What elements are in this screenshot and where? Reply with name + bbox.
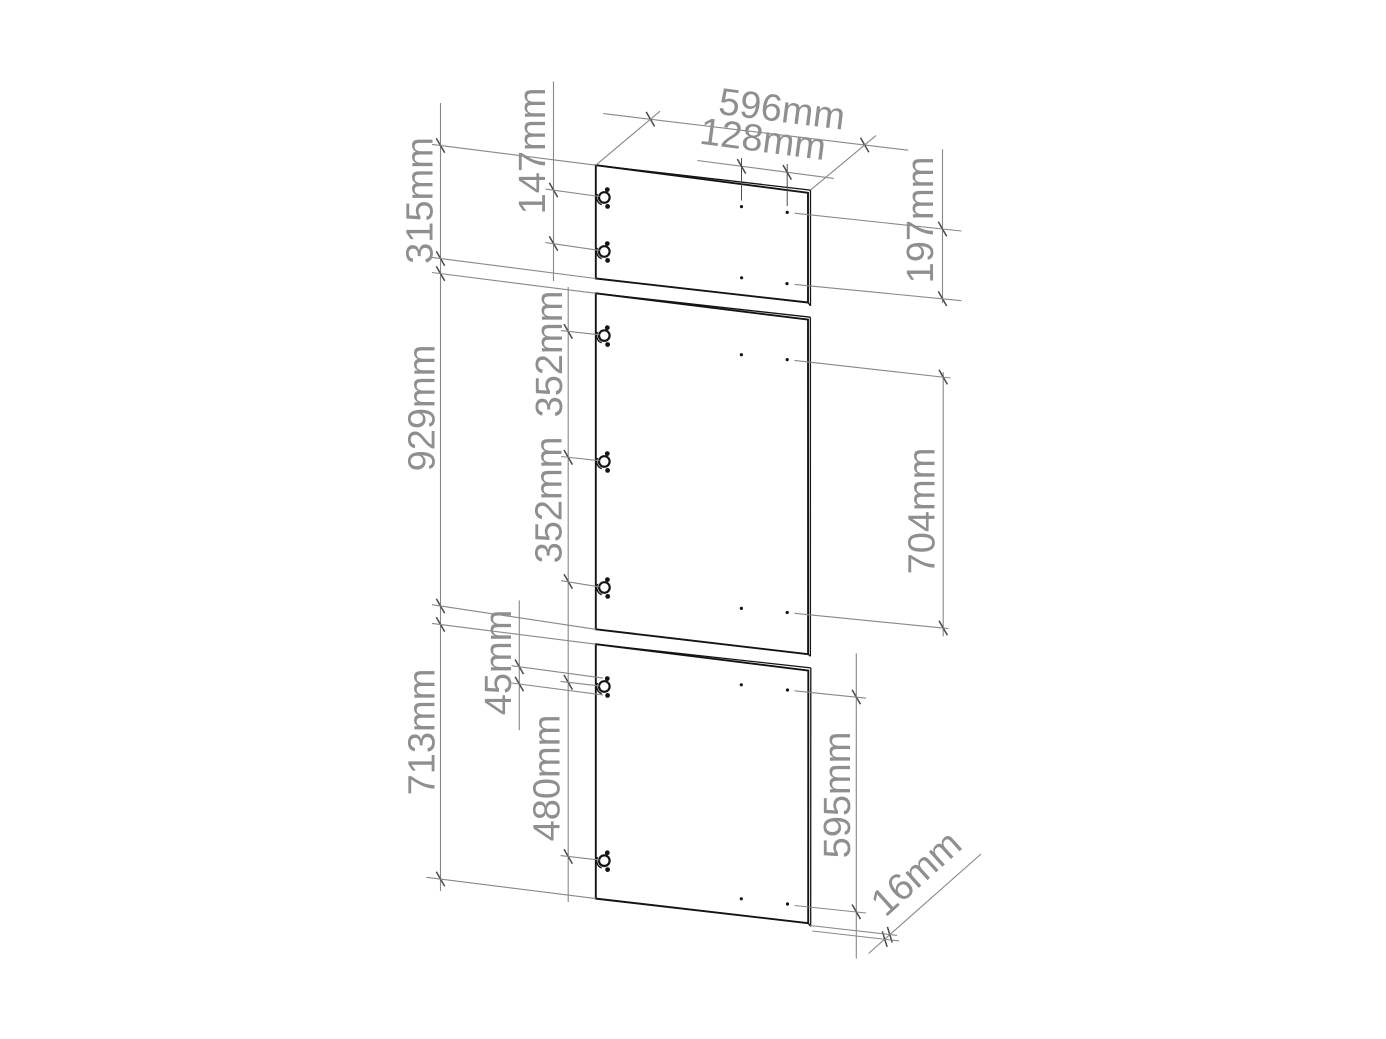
svg-text:480mm: 480mm xyxy=(526,715,568,842)
svg-text:45mm: 45mm xyxy=(478,610,520,716)
svg-text:16mm: 16mm xyxy=(863,823,970,925)
svg-text:197mm: 197mm xyxy=(900,157,942,284)
svg-text:147mm: 147mm xyxy=(512,88,554,215)
svg-text:315mm: 315mm xyxy=(400,137,442,264)
svg-text:704mm: 704mm xyxy=(902,448,944,575)
svg-text:352mm: 352mm xyxy=(529,437,571,564)
svg-text:713mm: 713mm xyxy=(401,669,443,796)
svg-text:352mm: 352mm xyxy=(529,291,571,418)
svg-text:929mm: 929mm xyxy=(402,345,444,472)
svg-text:595mm: 595mm xyxy=(817,732,859,859)
